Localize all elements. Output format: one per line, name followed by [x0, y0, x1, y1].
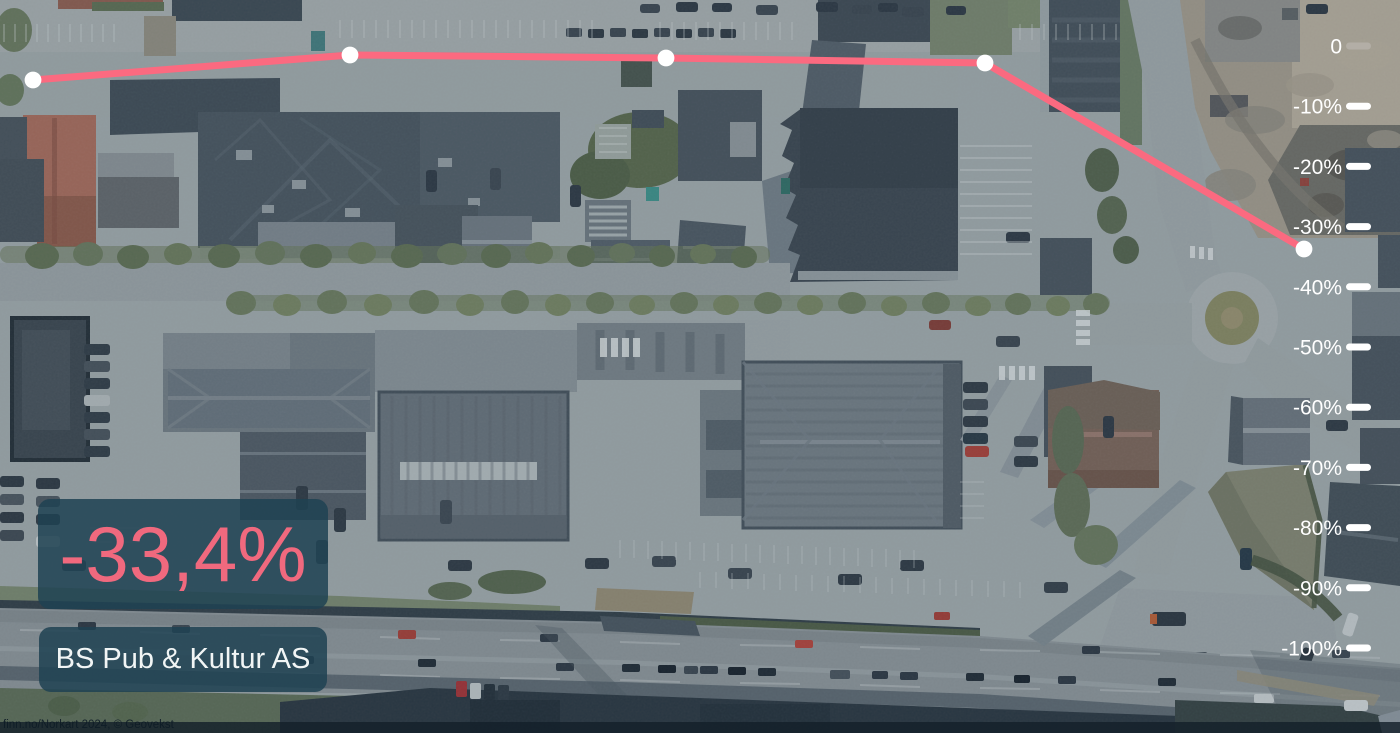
svg-text:-60%: -60%: [1293, 397, 1342, 420]
svg-text:-20%: -20%: [1293, 156, 1342, 179]
svg-text:-90%: -90%: [1293, 577, 1342, 600]
svg-text:-70%: -70%: [1293, 457, 1342, 480]
svg-text:0: 0: [1330, 36, 1342, 59]
svg-text:-100%: -100%: [1281, 638, 1342, 661]
svg-text:-30%: -30%: [1293, 216, 1342, 239]
svg-text:-10%: -10%: [1293, 96, 1342, 119]
svg-text:-50%: -50%: [1293, 337, 1342, 360]
svg-text:-40%: -40%: [1293, 276, 1342, 299]
svg-text:-80%: -80%: [1293, 517, 1342, 540]
